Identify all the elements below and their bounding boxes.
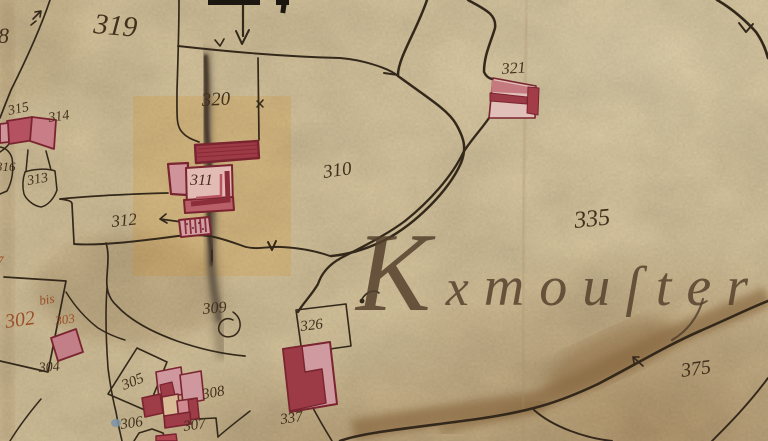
svg-text:326: 326 — [299, 316, 325, 335]
svg-text:306: 306 — [118, 414, 144, 433]
svg-text:303: 303 — [53, 310, 76, 328]
svg-text:304: 304 — [37, 360, 60, 376]
svg-text:7: 7 — [0, 253, 4, 268]
svg-text:310: 310 — [321, 158, 354, 183]
svg-text:309: 309 — [201, 299, 227, 318]
svg-text:311: 311 — [189, 172, 213, 189]
svg-text:312: 312 — [109, 209, 138, 231]
svg-text:314: 314 — [46, 108, 70, 126]
svg-text:bis: bis — [38, 291, 56, 308]
svg-text:321: 321 — [500, 59, 526, 78]
svg-text:335: 335 — [572, 204, 612, 234]
svg-text:302: 302 — [3, 307, 37, 333]
svg-text:319: 319 — [91, 8, 139, 44]
svg-text:375: 375 — [679, 356, 713, 382]
svg-text:320: 320 — [200, 89, 231, 112]
svg-text:316: 316 — [0, 159, 16, 174]
svg-text:8: 8 — [0, 23, 9, 48]
